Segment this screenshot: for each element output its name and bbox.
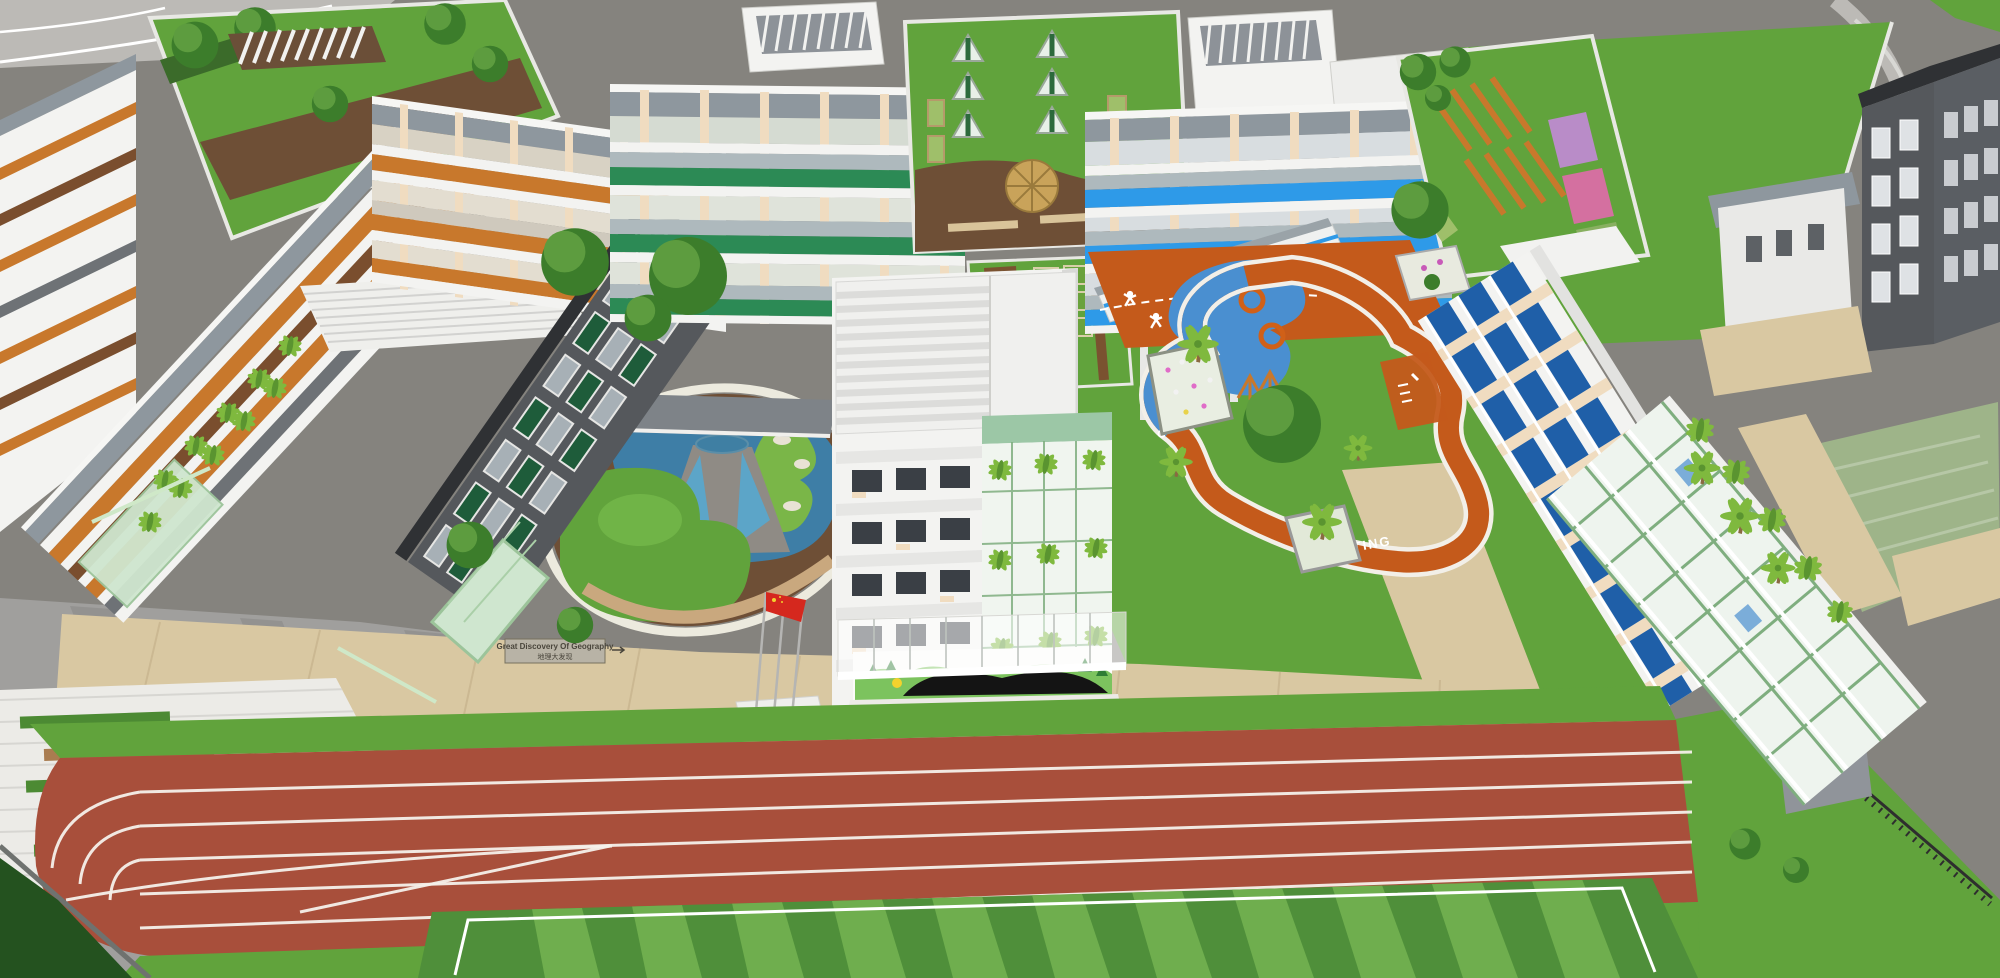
campus-scene: Great Discovery Of Geography 地理大发现 [0,0,2000,978]
stepped-roof [836,272,1076,434]
straw-umbrella [1006,160,1058,212]
tree [1439,46,1470,77]
flower-bed-ne [1396,246,1470,300]
small-house-right [1700,172,1872,396]
campus-rendering: Great Discovery Of Geography 地理大发现 [0,0,2000,978]
sign-text-en: Great Discovery Of Geography [497,642,614,651]
dark-building-far-right [1858,44,2000,352]
geography-sign: Great Discovery Of Geography 地理大发现 [497,639,624,663]
tree [1391,181,1448,238]
roof-volume-top-left-center [742,2,884,72]
tree [472,46,508,82]
entrance-canopy [838,612,1126,680]
tree [172,22,219,69]
tree [424,3,466,45]
tree [1243,385,1321,463]
running-track-area [30,686,1700,978]
sign-text-zh: 地理大发现 [538,652,573,661]
tree [1400,54,1436,90]
tree [312,86,348,122]
sun-icon [892,678,902,688]
tree [1425,85,1451,111]
